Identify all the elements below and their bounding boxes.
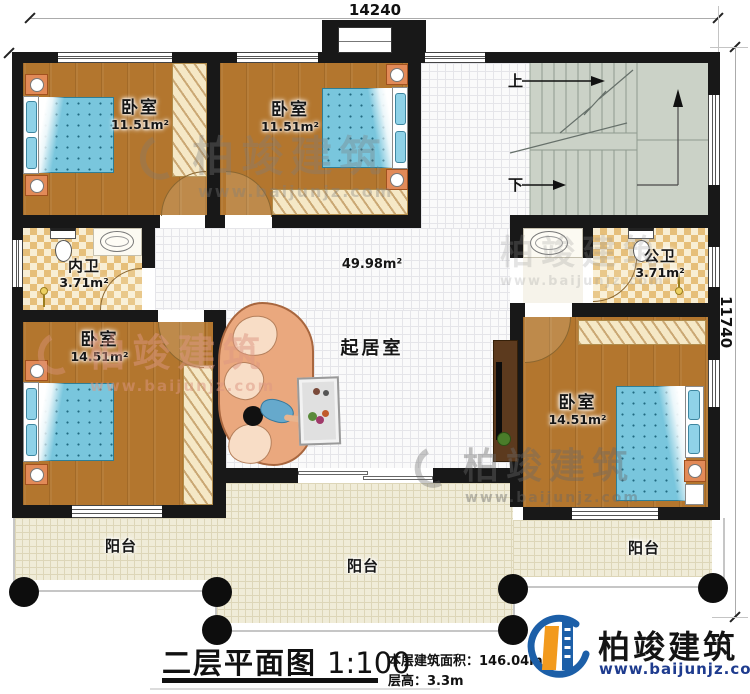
wall-bedroom1-2-divider [207, 52, 220, 228]
nightstand [25, 464, 48, 485]
floor-plan: 卧室 11.51m² 卧室 11.51m² 卧室 14.51m² 卧室 14.5… [0, 0, 750, 694]
window [12, 240, 23, 287]
room-area: 49.98m² [330, 257, 414, 272]
bed-pillow [395, 131, 406, 163]
room-name: 阳台 [93, 538, 149, 556]
sink [100, 231, 134, 252]
window [425, 52, 485, 63]
nightstand [386, 64, 408, 85]
balcony-railing [513, 586, 725, 588]
sliding-door-panel [363, 476, 433, 480]
bed-sheet [39, 383, 79, 461]
wall-bath-public-divider [583, 228, 593, 258]
dimension-top-value: 14240 [340, 1, 410, 19]
cup [313, 388, 320, 395]
room-name: 卧室 [95, 98, 185, 118]
balcony-railing [13, 590, 219, 592]
wall-bedroom4-top [572, 303, 708, 317]
room-area: 11.51m² [245, 120, 335, 135]
wall-alcove-left [510, 228, 523, 258]
cup [323, 390, 329, 396]
window [708, 247, 720, 287]
dimension-line-right [735, 48, 736, 618]
balcony-right-floor [513, 520, 712, 577]
bed-pillow [395, 93, 406, 125]
balcony-railing [215, 630, 515, 632]
window [237, 52, 318, 63]
bed-sheet [39, 97, 79, 173]
nightstand [386, 169, 408, 190]
drawing-title: 二层平面图1:100 [162, 640, 411, 682]
room-area: 11.51m² [95, 118, 185, 133]
company-logo-icon [522, 612, 590, 688]
room-label-balcony-right: 阳台 [616, 540, 672, 558]
floor-height-label: 层高： [388, 674, 427, 689]
floor-height-note: 层高：3.3m [388, 670, 464, 689]
wall-stair-bottom [510, 215, 708, 228]
column [698, 573, 728, 603]
wardrobe [272, 189, 408, 215]
coffee-table [297, 376, 341, 445]
bed-pillow [688, 424, 700, 454]
wardrobe [183, 365, 213, 505]
bed-footboard [685, 484, 704, 505]
room-label-bedroom3: 卧室 14.51m² [52, 330, 147, 365]
sliding-door-panel [298, 471, 368, 475]
room-label-bath-inner: 内卫 3.71m² [53, 258, 115, 290]
nightstand [25, 360, 48, 381]
wall-bath-inner-right [142, 228, 155, 268]
room-area: 14.51m² [52, 350, 147, 365]
room-label-bath-public: 公卫 3.71m² [629, 248, 691, 280]
flowers [322, 410, 329, 417]
stairs [421, 63, 708, 215]
bed-sheet [353, 88, 393, 168]
room-label-bedroom4: 卧室 14.51m² [530, 393, 625, 428]
wall-bedroom2-right [408, 52, 421, 215]
title-underline [162, 678, 378, 683]
living-area-label: 49.98m² [330, 257, 414, 272]
wardrobe [578, 320, 706, 345]
room-area: 14.51m² [530, 413, 625, 428]
nightstand [684, 460, 706, 482]
room-name: 卧室 [530, 393, 625, 413]
tv [496, 362, 502, 440]
wall-bath-inner-bottom [12, 310, 158, 322]
floor-height-value: 3.3m [427, 674, 464, 689]
room-name: 阳台 [616, 540, 672, 558]
floor-drain [675, 287, 683, 295]
wall-bedroom4-top [510, 303, 525, 317]
stairs-up-label: 上 [508, 70, 523, 91]
bed-pillow [26, 424, 37, 456]
room-name: 阳台 [335, 558, 391, 576]
bay-window [338, 27, 392, 53]
room-name: 起居室 [330, 338, 414, 359]
room-name: 内卫 [53, 258, 115, 276]
wall-mid-h [12, 215, 160, 228]
bed-pillow [26, 101, 37, 133]
room-name: 卧室 [245, 100, 335, 120]
window [58, 52, 172, 63]
room-area: 3.71m² [629, 266, 691, 281]
sink [530, 231, 568, 255]
dimension-extension [718, 6, 719, 52]
dimension-right-value: 11740 [717, 296, 735, 368]
hallway-floor-2 [421, 215, 510, 228]
wall-mid-h [205, 215, 225, 228]
column [9, 577, 39, 607]
floor-drain [40, 287, 48, 295]
column [202, 577, 232, 607]
bed-pillow [26, 388, 37, 420]
window [708, 95, 720, 185]
nightstand [25, 175, 48, 196]
room-name: 公卫 [629, 248, 691, 266]
room-label-living: 起居室 [330, 338, 414, 359]
room-label-balcony-center: 阳台 [335, 558, 391, 576]
toilet [50, 228, 76, 239]
sliding-door [298, 470, 433, 481]
bed-pillow [26, 137, 37, 169]
room-area: 3.71m² [53, 276, 115, 291]
floor-drain-stem [43, 295, 45, 307]
window [572, 507, 658, 520]
stairs-down-label: 下 [508, 174, 523, 195]
nightstand [25, 74, 48, 95]
drawing-title-text: 二层平面图 [162, 646, 317, 680]
dimension-extension [710, 47, 748, 48]
bed-pillow [688, 390, 700, 420]
column [498, 574, 528, 604]
room-name: 卧室 [52, 330, 147, 350]
room-label-balcony-left: 阳台 [93, 538, 149, 556]
floor-area-label: 本层建筑面积： [388, 654, 479, 669]
bed-sheet [646, 386, 686, 501]
wall-mid-h [272, 215, 421, 228]
room-label-bedroom2: 卧室 11.51m² [245, 100, 335, 135]
room-label-bedroom1: 卧室 11.51m² [95, 98, 185, 133]
plant [497, 432, 511, 446]
window [72, 505, 162, 518]
toilet [628, 228, 654, 239]
balcony-center-floor [217, 483, 513, 623]
company-website: www.baijunjz.com [599, 660, 750, 678]
flowers [316, 416, 324, 424]
dimension-extension [712, 617, 748, 618]
